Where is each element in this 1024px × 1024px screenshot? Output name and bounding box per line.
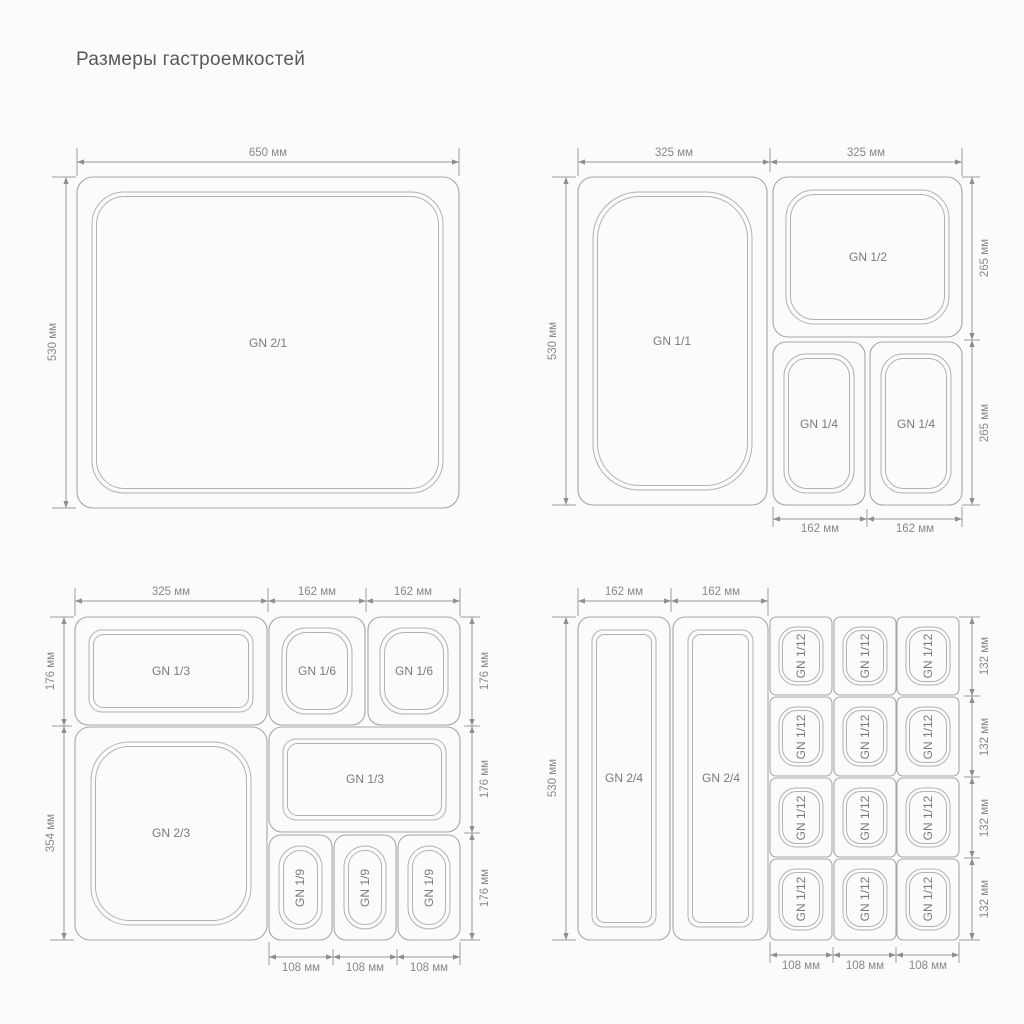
container-label: GN 1/6 [395, 664, 433, 678]
container-gn112-cell: GN 1/12 [770, 617, 832, 695]
dim-label: 325 мм [655, 147, 693, 159]
dim-label: 108 мм [846, 960, 884, 972]
container-label: GN 1/12 [858, 714, 872, 759]
container-label: GN 2/4 [605, 771, 643, 785]
dim-label: 354 мм [45, 814, 57, 852]
dim-label: 265 мм [979, 239, 991, 277]
container-label: GN 1/12 [858, 633, 872, 678]
dim-top: 650 мм [77, 147, 459, 176]
container-gn21: GN 2/1 [77, 177, 459, 508]
dim-right: 132 мм 132 мм 132 мм 132 мм [959, 617, 991, 940]
container-label: GN 1/12 [794, 714, 808, 759]
container-label: GN 1/12 [794, 795, 808, 840]
dim-label: 162 мм [605, 586, 643, 598]
dim-bottom: 108 мм 108 мм 108 мм [269, 942, 460, 974]
dim-label: 325 мм [847, 147, 885, 159]
dim-label: 162 мм [702, 586, 740, 598]
dim-bottom: 108 мм 108 мм 108 мм [770, 942, 959, 972]
container-label: GN 1/1 [653, 334, 691, 348]
dim-left: 530 мм [547, 177, 576, 505]
container-gn13a: GN 1/3 [75, 617, 267, 725]
dim-label: 530 мм [547, 322, 559, 360]
container-gn23: GN 2/3 [75, 727, 267, 940]
dim-label: 530 мм [547, 759, 559, 797]
dim-label: 108 мм [909, 960, 947, 972]
dim-label: 162 мм [896, 523, 934, 535]
dim-label: 176 мм [45, 652, 57, 690]
container-gn19b: GN 1/9 [334, 835, 396, 940]
container-gn112-cell: GN 1/12 [770, 778, 832, 857]
container-gn112-cell: GN 1/12 [897, 697, 959, 776]
container-gn112-cell: GN 1/12 [897, 617, 959, 695]
dim-label: 176 мм [479, 652, 491, 690]
diagram-canvas: GN 2/1 650 мм 530 мм GN 1/1 [0, 0, 1024, 1024]
dim-top: 162 мм 162 мм [578, 586, 768, 616]
dim-label: 162 мм [801, 523, 839, 535]
container-gn19a: GN 1/9 [269, 835, 332, 940]
container-label: GN 1/9 [358, 869, 372, 907]
dim-left: 530 мм [47, 177, 76, 508]
container-gn112-cell: GN 1/12 [897, 859, 959, 940]
container-label: GN 1/12 [794, 876, 808, 921]
dim-bottom: 162 мм 162 мм [773, 507, 962, 535]
container-gn112-cell: GN 1/12 [770, 859, 832, 940]
container-gn13b: GN 1/3 [269, 727, 460, 832]
dim-label: 176 мм [479, 869, 491, 907]
container-gn112-cell: GN 1/12 [834, 859, 896, 940]
container-label: GN 1/6 [298, 664, 336, 678]
container-label: GN 2/1 [249, 336, 287, 350]
container-gn112-cell: GN 1/12 [770, 697, 832, 776]
container-label: GN 1/3 [152, 664, 190, 678]
container-gn16b: GN 1/6 [368, 617, 460, 725]
dim-label: 108 мм [782, 960, 820, 972]
dim-label: 132 мм [979, 799, 991, 837]
gastronorm-size-diagram: Размеры гастроемкостей GN 2/1 650 мм [0, 0, 1024, 1024]
container-gn112-cell: GN 1/12 [834, 778, 896, 857]
container-label: GN 1/12 [921, 876, 935, 921]
panel-gn11-group: GN 1/1 GN 1/2 GN 1/4 GN 1/4 [547, 147, 991, 535]
container-gn19c: GN 1/9 [398, 835, 460, 940]
dim-label: 108 мм [282, 962, 320, 974]
container-gn11: GN 1/1 [578, 177, 767, 505]
container-label: GN 1/12 [858, 876, 872, 921]
dim-label: 108 мм [346, 962, 384, 974]
dim-right: 265 мм 265 мм [962, 177, 991, 505]
dim-label: 108 мм [410, 962, 448, 974]
container-label: GN 1/9 [293, 869, 307, 907]
dim-label: 162 мм [298, 586, 336, 598]
container-gn112-cell: GN 1/12 [897, 778, 959, 857]
dim-label: 132 мм [979, 637, 991, 675]
dim-label: 265 мм [979, 404, 991, 442]
dim-label: 132 мм [979, 718, 991, 756]
dim-label: 530 мм [47, 323, 59, 361]
dim-top: 325 мм 162 мм 162 мм [75, 586, 460, 616]
dim-label: 650 мм [249, 147, 287, 159]
container-label: GN 1/12 [858, 795, 872, 840]
dim-label: 132 мм [979, 880, 991, 918]
dim-left: 176 мм 354 мм [45, 617, 74, 940]
container-label: GN 1/12 [921, 714, 935, 759]
dim-label: 176 мм [479, 760, 491, 798]
container-gn16a: GN 1/6 [269, 617, 365, 725]
container-label: GN 1/12 [921, 633, 935, 678]
container-gn12: GN 1/2 [773, 177, 962, 337]
container-label: GN 1/4 [897, 417, 935, 431]
container-label: GN 1/12 [921, 795, 935, 840]
dim-label: 162 мм [394, 586, 432, 598]
container-gn24b: GN 2/4 [673, 617, 768, 940]
container-gn112-cell: GN 1/12 [834, 617, 896, 695]
dim-left: 530 мм [547, 617, 576, 940]
container-label: GN 1/4 [800, 417, 838, 431]
container-label: GN 1/3 [346, 772, 384, 786]
dim-right: 176 мм 176 мм 176 мм [460, 617, 491, 940]
container-gn14b: GN 1/4 [870, 342, 962, 505]
container-label: GN 1/2 [849, 250, 887, 264]
container-gn14a: GN 1/4 [773, 342, 865, 505]
container-label: GN 1/12 [794, 633, 808, 678]
container-label: GN 2/4 [702, 771, 740, 785]
panel-gn24-group: GN 2/4 GN 2/4 GN 1/12 GN 1/12 [547, 586, 991, 972]
container-label: GN 1/9 [422, 869, 436, 907]
panel-gn21: GN 2/1 650 мм 530 мм [47, 147, 459, 508]
container-label: GN 2/3 [152, 826, 190, 840]
dim-top: 325 мм 325 мм [578, 147, 962, 176]
panel-gn23-group: GN 1/3 GN 1/6 GN 1/6 GN 2/3 [45, 586, 491, 974]
container-gn24a: GN 2/4 [578, 617, 670, 940]
container-gn112-cell: GN 1/12 [834, 697, 896, 776]
dim-label: 325 мм [152, 586, 190, 598]
